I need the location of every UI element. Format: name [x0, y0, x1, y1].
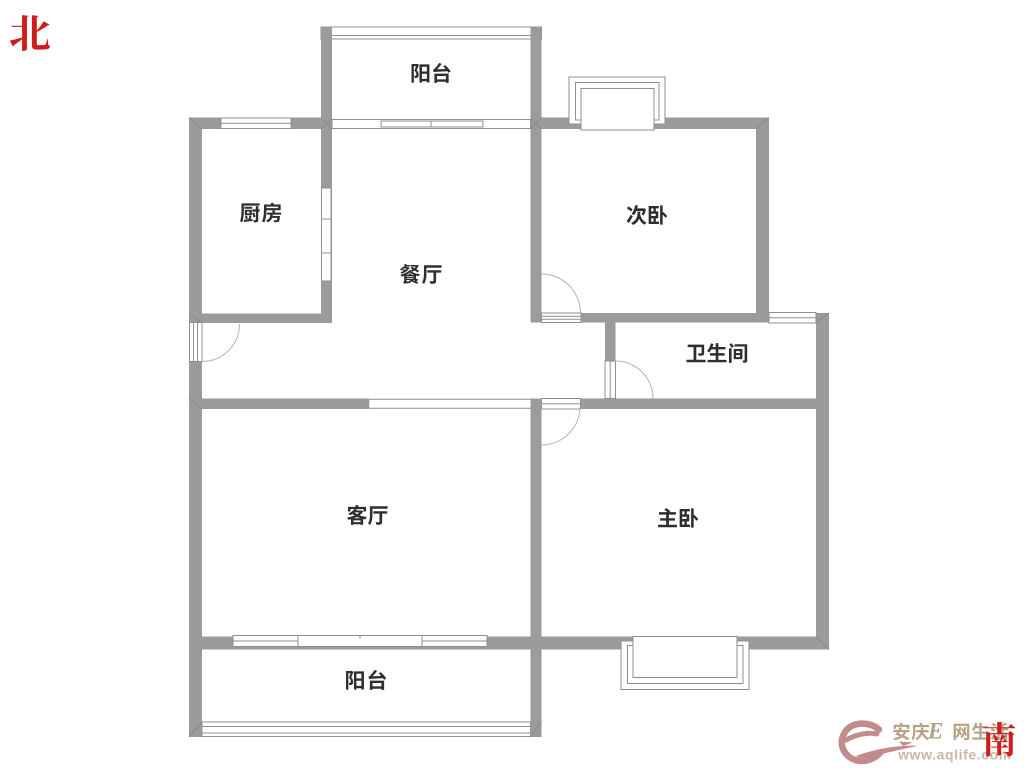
svg-text:www.aqlife.com: www.aqlife.com — [897, 747, 1012, 763]
svg-text:E: E — [927, 719, 943, 744]
